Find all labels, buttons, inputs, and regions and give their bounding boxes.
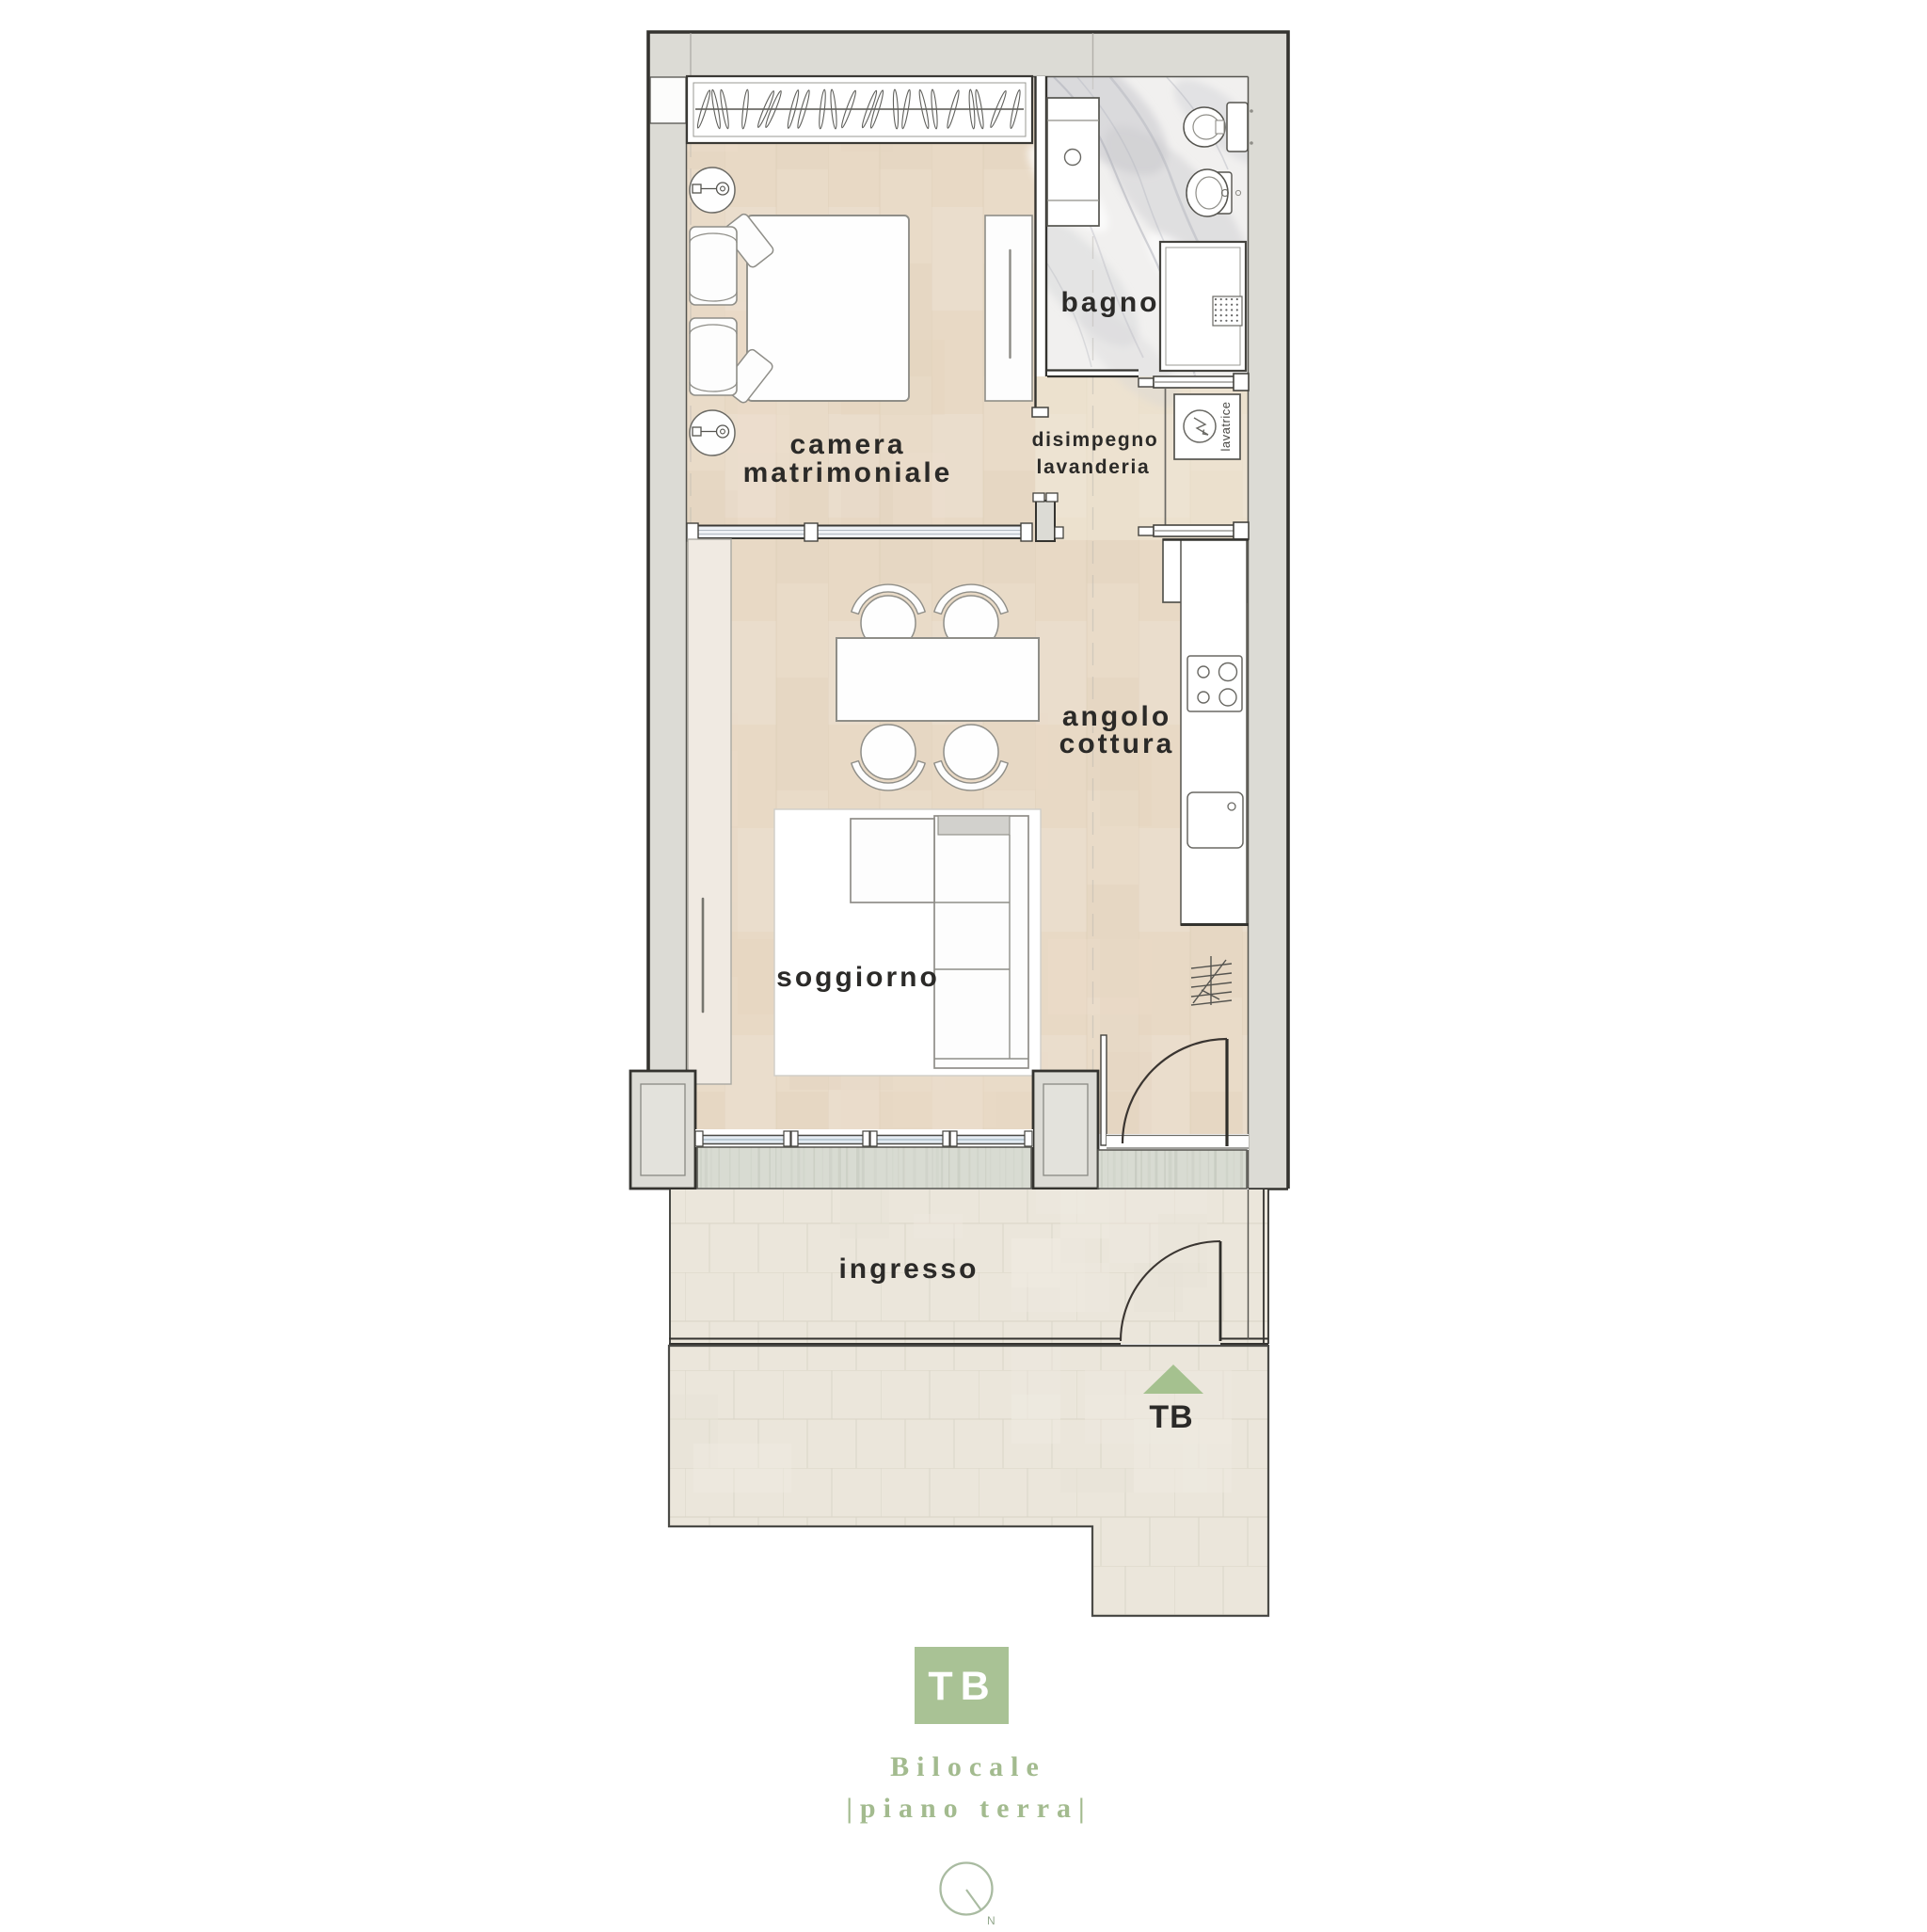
svg-text:cottura: cottura xyxy=(1059,728,1175,759)
svg-text:lavanderia: lavanderia xyxy=(1037,456,1151,478)
svg-text:bagno: bagno xyxy=(1061,287,1160,318)
svg-text:TB: TB xyxy=(928,1664,996,1709)
svg-text:disimpegno: disimpegno xyxy=(1032,429,1159,451)
svg-text:lavatrice: lavatrice xyxy=(1218,402,1233,452)
svg-text:Bilocale: Bilocale xyxy=(890,1751,1046,1782)
svg-text:|piano terra|: |piano terra| xyxy=(846,1793,1091,1824)
svg-text:matrimoniale: matrimoniale xyxy=(743,457,953,488)
svg-text:N: N xyxy=(987,1914,995,1927)
svg-text:TB: TB xyxy=(1149,1399,1193,1435)
svg-text:camera: camera xyxy=(789,429,905,460)
svg-text:soggiorno: soggiorno xyxy=(776,962,940,993)
svg-text:ingresso: ingresso xyxy=(838,1253,979,1285)
